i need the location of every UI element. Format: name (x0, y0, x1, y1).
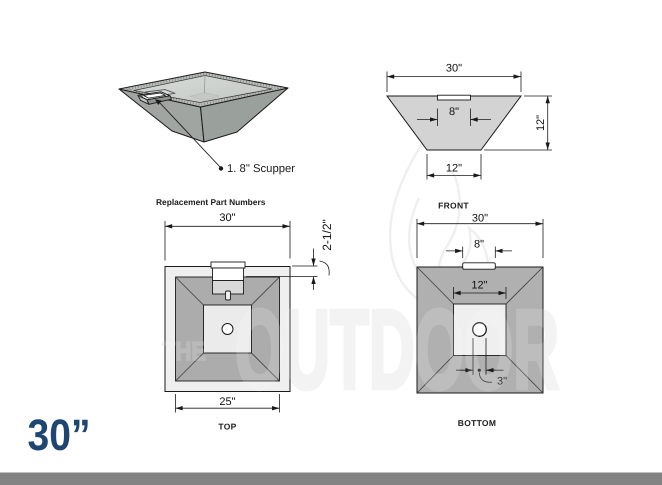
svg-text:25": 25" (219, 396, 235, 408)
svg-text:30": 30" (472, 213, 488, 225)
svg-text:THE: THE (162, 336, 206, 366)
svg-text:8": 8" (474, 239, 484, 251)
svg-text:12": 12" (535, 115, 547, 131)
svg-text:BOTTOM: BOTTOM (458, 418, 496, 428)
svg-text:FRONT: FRONT (438, 201, 469, 211)
svg-text:30": 30" (446, 63, 462, 75)
svg-text:TOP: TOP (218, 422, 236, 432)
svg-text:1. 8" Scupper: 1. 8" Scupper (227, 163, 295, 175)
svg-text:30": 30" (219, 212, 235, 224)
svg-text:Replacement Part Numbers: Replacement Part Numbers (156, 197, 266, 207)
svg-text:8": 8" (449, 106, 459, 118)
svg-text:2-1/2": 2-1/2" (320, 219, 334, 251)
svg-text:30”: 30” (28, 411, 91, 460)
svg-text:12": 12" (446, 163, 462, 175)
svg-text:OUTDOOR: OUTDOOR (235, 287, 559, 412)
